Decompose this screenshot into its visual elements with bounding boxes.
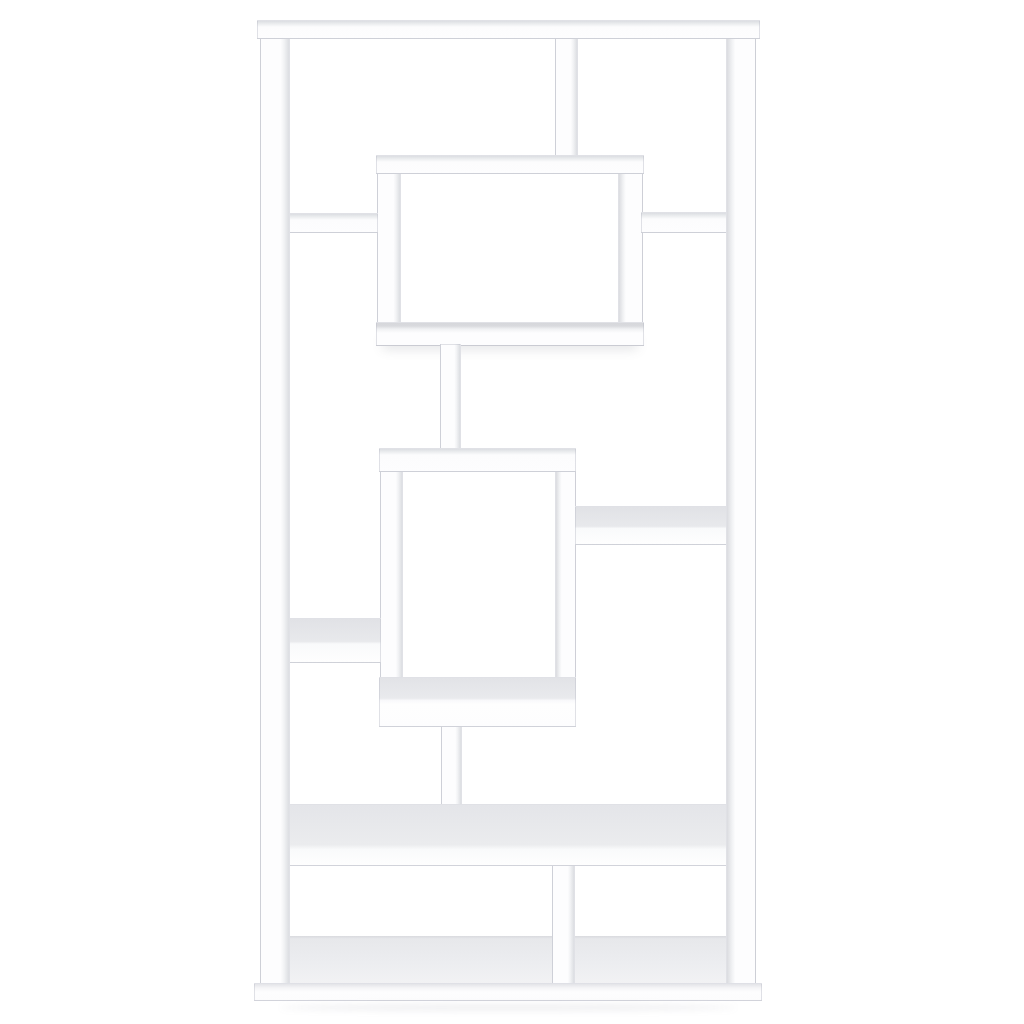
bookcase: [0, 0, 1024, 1024]
base-plinth: [254, 983, 762, 1001]
bottom-deck-surface: [287, 936, 729, 984]
upper-box-right-wall: [618, 156, 643, 346]
center-box-bottom: [379, 677, 576, 727]
wide-lower-shelf: [288, 804, 728, 866]
page: { "scene": { "description": "Product pho…: [0, 0, 1024, 1024]
upper-box-left-wall: [377, 156, 401, 346]
middle-left-shelf: [288, 618, 381, 663]
upper-left-shelf: [288, 213, 378, 233]
top-divider: [555, 37, 578, 159]
upper-box-bottom: [376, 322, 644, 346]
upper-box-top: [376, 155, 644, 174]
floor-shadow: [280, 1004, 736, 1011]
center-box-top: [379, 448, 576, 472]
upper-right-shelf: [641, 212, 728, 233]
bottom-divider: [552, 856, 575, 984]
right-side-panel: [726, 37, 756, 984]
middle-right-shelf: [575, 506, 727, 545]
upper-connector: [440, 344, 461, 452]
top-panel: [257, 20, 760, 39]
product-photo: [0, 0, 1024, 1024]
left-side-panel: [260, 37, 290, 984]
